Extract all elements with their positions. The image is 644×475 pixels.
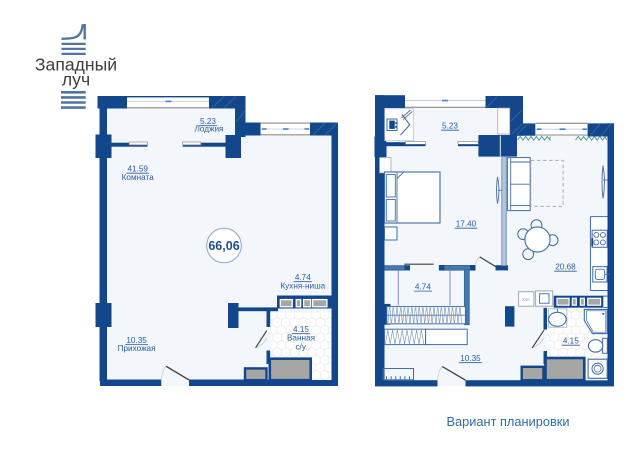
svg-text:с/у: с/у bbox=[295, 343, 306, 352]
svg-text:Комната: Комната bbox=[122, 173, 155, 182]
svg-text:10.35: 10.35 bbox=[460, 354, 481, 363]
svg-text:Ванная: Ванная bbox=[287, 334, 315, 343]
svg-text:Кухня-ниша: Кухня-ниша bbox=[280, 281, 325, 290]
svg-text:20.68: 20.68 bbox=[555, 263, 576, 272]
svg-text:5.23: 5.23 bbox=[442, 122, 458, 131]
svg-text:Хол.: Хол. bbox=[522, 297, 531, 302]
svg-text:Прихожая: Прихожая bbox=[118, 344, 156, 353]
svg-text:17.40: 17.40 bbox=[456, 220, 477, 229]
svg-text:4.15: 4.15 bbox=[563, 337, 579, 346]
svg-text:4.74: 4.74 bbox=[415, 282, 431, 291]
svg-text:4.15: 4.15 bbox=[293, 325, 309, 334]
svg-text:Лоджия: Лоджия bbox=[194, 125, 223, 134]
svg-text:66,06: 66,06 bbox=[208, 239, 239, 253]
svg-text:луч: луч bbox=[62, 70, 90, 90]
svg-text:Вариант планировки: Вариант планировки bbox=[446, 414, 569, 429]
